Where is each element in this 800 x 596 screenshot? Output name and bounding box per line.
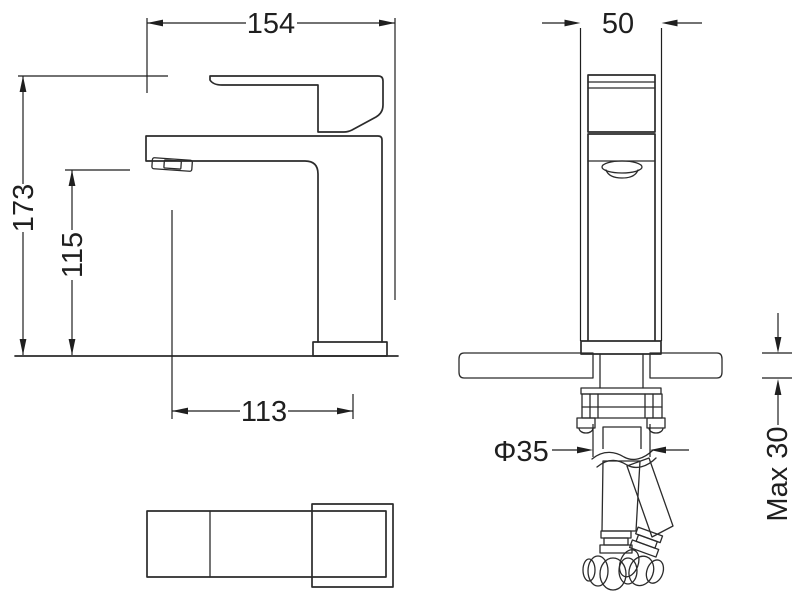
base-flange-front bbox=[581, 341, 661, 354]
handle-lever bbox=[210, 76, 383, 132]
handle-front bbox=[588, 75, 655, 132]
supply-hose-right bbox=[627, 458, 673, 537]
dim-base-width-label: 50 bbox=[602, 8, 634, 40]
base-flange bbox=[313, 342, 387, 356]
top-view-handle bbox=[312, 504, 393, 587]
hose-fitting-left bbox=[583, 531, 637, 590]
dim-spout-height-label: 115 bbox=[57, 232, 89, 278]
dim-max-mounting-thickness-label: Max 30 bbox=[762, 426, 794, 521]
dim-spout-height: 115 bbox=[57, 170, 130, 355]
aerator-front bbox=[602, 161, 642, 178]
countertop-slab-left bbox=[459, 353, 593, 378]
drawing-canvas: 154 173 115 113 bbox=[0, 0, 800, 596]
supply-hose-upper bbox=[603, 427, 641, 451]
dim-overall-length-label: 154 bbox=[247, 8, 295, 40]
dim-base-width: 50 bbox=[542, 8, 702, 341]
dim-max-mounting-thickness: Max 30 bbox=[762, 313, 794, 522]
dim-overall-height: 173 bbox=[8, 76, 40, 355]
washer bbox=[581, 388, 661, 394]
dim-spout-reach: 113 bbox=[172, 394, 353, 428]
dim-spout-reach-label: 113 bbox=[241, 396, 287, 428]
top-view-body bbox=[147, 511, 386, 577]
mounting-shank bbox=[600, 354, 643, 388]
supply-hose-left bbox=[602, 461, 640, 531]
body-front bbox=[588, 134, 655, 340]
dim-overall-height-label: 173 bbox=[8, 184, 40, 232]
top-view bbox=[147, 504, 393, 587]
countertop-slab-right bbox=[650, 353, 722, 378]
dim-hole-diameter-label: Φ35 bbox=[493, 436, 548, 468]
faucet-technical-drawing: 154 173 115 113 bbox=[0, 0, 800, 596]
aerator-outline bbox=[152, 158, 193, 172]
